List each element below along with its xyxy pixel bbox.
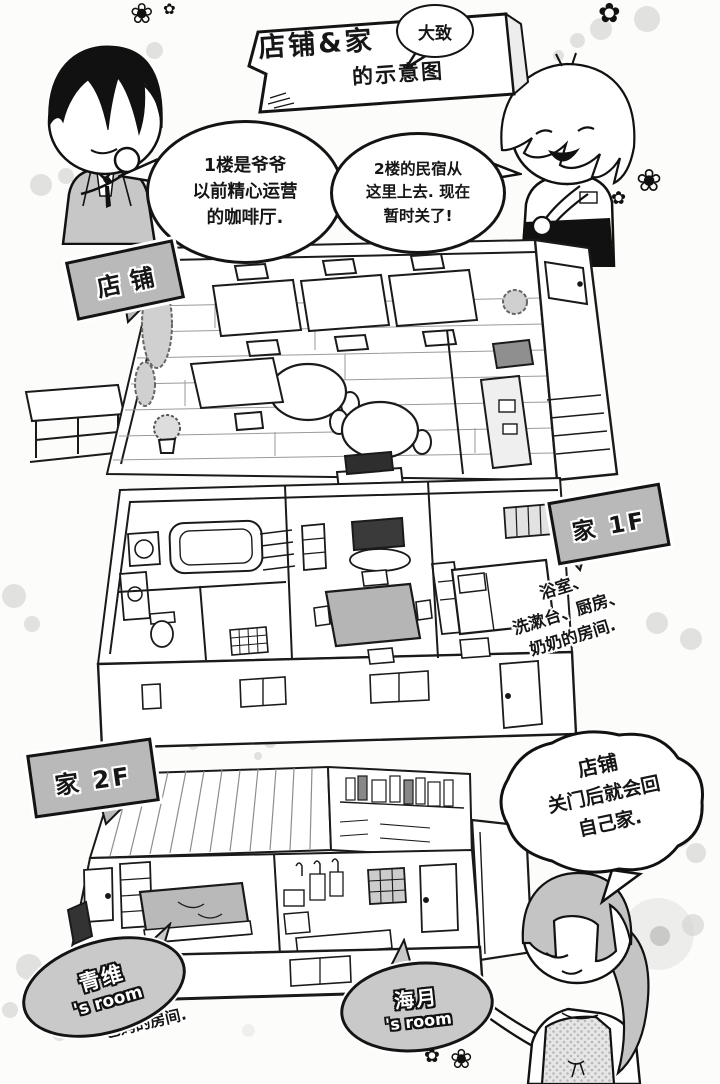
speech-line: 暂时关了! [383,205,452,228]
speech-line: 2楼的民宿从 [374,158,462,181]
flower-outline-icon: ❀ [130,0,153,28]
banner-title: 店铺&家 [257,18,376,65]
flower-filled-icon: ✿ [424,1047,440,1066]
flower-filled-icon: ✿ [611,190,626,208]
speech-line: 1楼是爷爷 [204,153,286,179]
halftone-dot [2,1002,18,1018]
shop-label-text: 店铺 [93,255,167,303]
room-name: 海月 [393,981,440,1014]
halftone-dot [634,6,660,32]
speech-bubble-closing: 店铺 关门后就会回 自己家. [490,724,720,909]
manga-page: ❀ ✿ ✿ ❀ ✿ ✿ ❀ 店铺&家 的示意图 大致 [0,0,720,1084]
speech-line: 的咖啡厅. [207,205,284,231]
halftone-dot [24,616,40,632]
halftone-dot [570,33,585,48]
halftone-dot [242,1024,255,1037]
home-2f-label-text: 家 2F [52,755,134,800]
flower-outline-icon: ❀ [450,1046,473,1073]
flower-outline-icon: ❀ [636,166,662,197]
speech-line: 这里上去. 现在 [366,181,470,204]
speech-line: 以前精心运营 [193,179,298,205]
flower-filled-icon: ✿ [598,0,621,27]
speech-bubble-guesthouse: 2楼的民宿从 这里上去. 现在 暂时关了! [330,132,506,254]
home-1f-label-text: 家 1F [569,501,649,547]
banner-badge: 大致 [396,4,474,58]
halftone-dot [2,584,26,608]
flower-filled-icon: ✿ [163,2,176,17]
halftone-dot [680,628,702,650]
banner-badge-text: 大致 [418,19,452,44]
speech-bubble-cafe: 1楼是爷爷 以前精心运营 的咖啡厅. [146,120,344,264]
